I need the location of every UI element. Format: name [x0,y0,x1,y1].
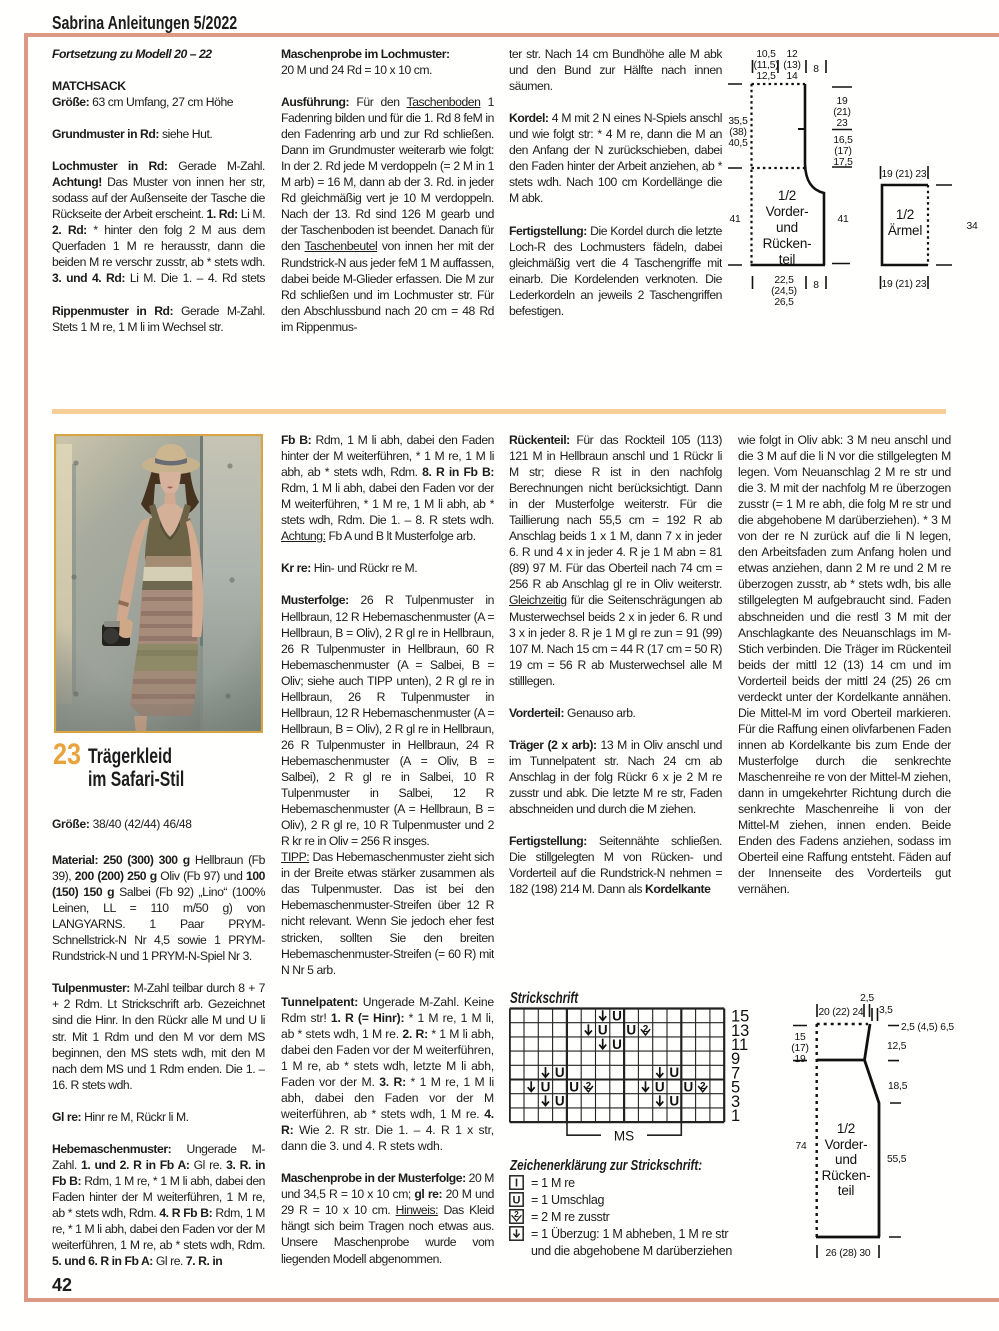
svg-text:teil: teil [838,1183,855,1198]
svg-text:teil: teil [779,252,796,267]
svg-text:U: U [612,1037,622,1052]
svg-text:26 (28) 30: 26 (28) 30 [826,1248,871,1259]
svg-text:(11,5): (11,5) [754,60,779,71]
svg-text:16,5: 16,5 [833,135,853,146]
svg-text:U: U [513,1195,521,1207]
svg-text:Rücken-: Rücken- [822,1168,871,1183]
svg-text:(17): (17) [834,146,852,157]
svg-text:U: U [655,1079,665,1094]
svg-text:(13): (13) [783,60,801,71]
svg-text:55,5: 55,5 [887,1154,907,1165]
svg-text:2,5: 2,5 [860,993,874,1004]
svg-text:und: und [835,1152,857,1167]
svg-text:20 (22) 24: 20 (22) 24 [819,1007,864,1018]
svg-text:14: 14 [786,71,798,82]
svg-text:74: 74 [795,1141,807,1152]
svg-text:U: U [541,1079,551,1094]
svg-text:41: 41 [729,214,741,225]
svg-text:U: U [669,1065,679,1080]
svg-text:1: 1 [731,1107,740,1125]
svg-text:(38): (38) [729,127,747,138]
svg-text:23: 23 [836,118,848,129]
svg-text:1/2: 1/2 [896,207,914,222]
svg-text:U: U [669,1094,679,1109]
svg-text:Ärmel: Ärmel [888,223,922,238]
svg-text:Vorder-: Vorder- [825,1137,868,1152]
svg-text:35,5: 35,5 [728,116,748,127]
svg-text:3,5: 3,5 [879,1005,893,1016]
svg-text:U: U [612,1008,622,1023]
svg-text:12: 12 [786,49,798,60]
svg-text:10,5: 10,5 [756,49,776,60]
svg-text:Rücken-: Rücken- [763,236,812,251]
svg-text:1/2: 1/2 [778,188,796,203]
svg-text:34: 34 [966,221,978,232]
svg-text:U: U [569,1079,579,1094]
svg-text:2: 2 [514,1209,519,1219]
svg-text:19: 19 [836,96,848,107]
svg-text:26,5: 26,5 [774,297,794,308]
svg-text:MS: MS [614,1129,634,1144]
svg-text:19 (21) 23: 19 (21) 23 [882,169,927,180]
svg-text:8: 8 [813,280,819,291]
svg-text:U: U [626,1023,636,1038]
svg-text:und: und [776,220,798,235]
svg-text:19 (21) 23: 19 (21) 23 [882,279,927,290]
svg-text:40,5: 40,5 [728,138,748,149]
svg-text:19: 19 [794,1054,806,1065]
svg-text:U: U [555,1065,565,1080]
svg-text:12,5: 12,5 [887,1041,907,1052]
svg-text:17,5: 17,5 [833,157,853,168]
svg-text:22,5: 22,5 [774,275,794,286]
svg-text:(24,5): (24,5) [771,286,797,297]
svg-text:2,5 (4,5) 6,5: 2,5 (4,5) 6,5 [901,1022,954,1033]
svg-text:U: U [684,1079,694,1094]
svg-text:1/2: 1/2 [837,1121,855,1136]
svg-text:U: U [555,1094,565,1109]
svg-text:15: 15 [794,1032,806,1043]
svg-text:(17): (17) [791,1043,809,1054]
svg-text:Vorder-: Vorder- [766,204,809,219]
svg-text:18,5: 18,5 [888,1081,908,1092]
svg-text:(21): (21) [833,107,851,118]
svg-text:8: 8 [813,64,819,75]
svg-text:12,5: 12,5 [756,71,776,82]
svg-text:U: U [598,1023,608,1038]
svg-text:41: 41 [837,214,849,225]
